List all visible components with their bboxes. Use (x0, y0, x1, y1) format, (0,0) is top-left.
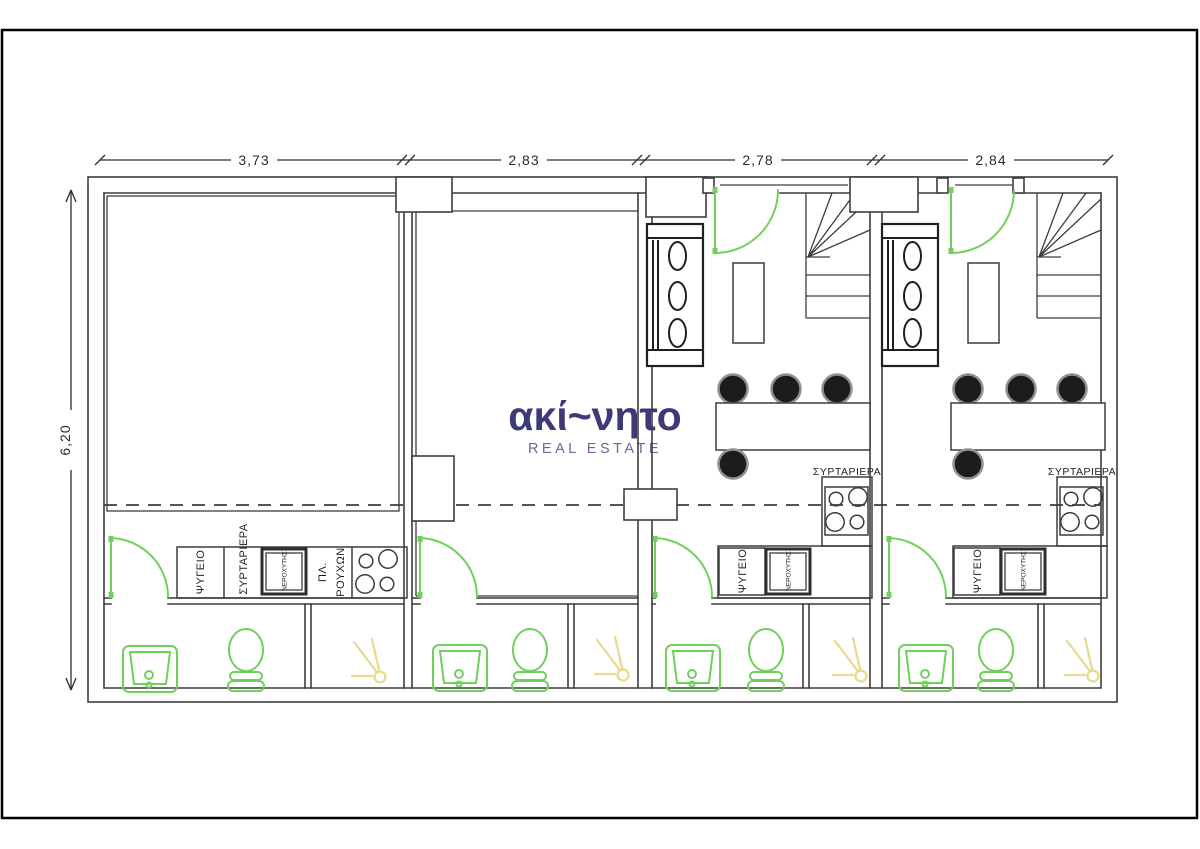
fridge-label: ΨΥΓΕΙΟ (972, 549, 984, 594)
dim-width-1: 3,73 (238, 152, 269, 168)
dim-width-2: 2,83 (508, 152, 539, 168)
watermark-brand: ακί~νητο (508, 393, 681, 439)
sofa (647, 224, 703, 366)
dim-height: 6,20 (57, 424, 73, 455)
washer-label-1: ΠΛ. (317, 562, 329, 582)
washer-label-2: ΡΟΥΧΩΝ (335, 547, 347, 596)
fridge-label: ΨΥΓΕΙΟ (737, 549, 749, 594)
sink-label: ΝΕΡΟΧΥΤΗΣ (1021, 551, 1028, 591)
drawers-label: ΣΥΡΤΑΡΙΕΡΑ (813, 466, 881, 478)
watermark: ακί~νητο REAL ESTATE (488, 388, 702, 462)
dim-width-4: 2,84 (975, 152, 1006, 168)
sink-label: ΝΕΡΟΧΥΤΗΣ (282, 551, 289, 591)
floor-plan-page: ακί~νητο REAL ESTATE ΨΥΓΕΙΟ (0, 0, 1200, 849)
drawers-label: ΣΥΡΤΑΡΙΕΡΑ (1048, 466, 1116, 478)
coffee-table (968, 263, 999, 343)
coffee-table (733, 263, 764, 343)
floor-plan-drawing: ακί~νητο REAL ESTATE ΨΥΓΕΙΟ (0, 0, 1200, 849)
sofa (882, 224, 938, 366)
watermark-subtitle: REAL ESTATE (528, 441, 662, 457)
dim-width-3: 2,78 (742, 152, 773, 168)
fridge-label: ΨΥΓΕΙΟ (195, 550, 207, 595)
drawers-label: ΣΥΡΤΑΡΙΕΡΑ (238, 523, 250, 594)
sink-label: ΝΕΡΟΧΥΤΗΣ (786, 551, 793, 591)
